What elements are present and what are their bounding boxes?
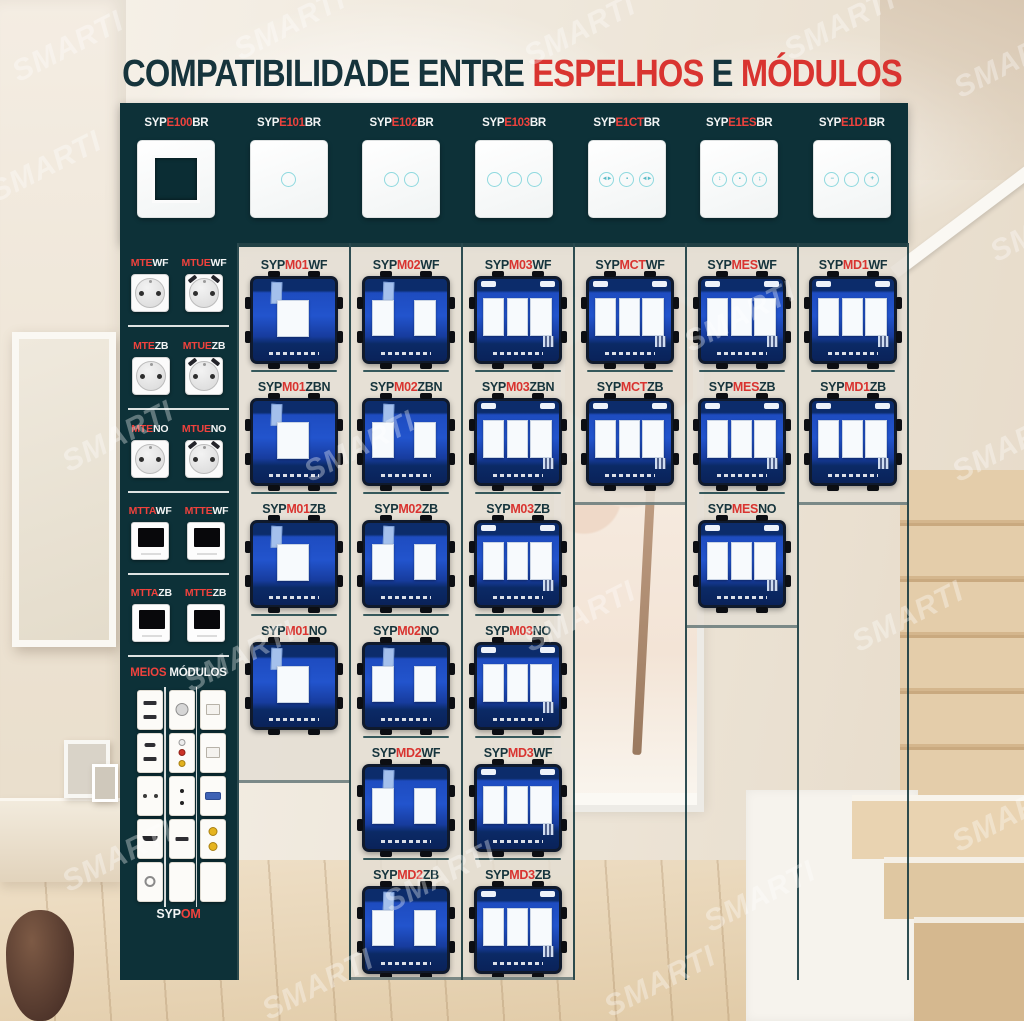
label-part-code: M01 xyxy=(285,624,308,638)
label-part-code: M03 xyxy=(506,380,529,394)
mtezb-image xyxy=(132,357,170,395)
cell-divider xyxy=(587,370,673,372)
mounting-tab xyxy=(337,575,343,587)
mounting-tab xyxy=(449,419,455,431)
title-part: E xyxy=(703,53,740,95)
mounting-tab xyxy=(449,697,455,709)
button-area xyxy=(414,300,435,335)
mounting-tab xyxy=(469,785,475,797)
mounting-tab xyxy=(716,515,728,521)
mounting-tab xyxy=(357,941,363,953)
cell-divider xyxy=(475,858,561,860)
mounting-tab xyxy=(420,485,432,491)
corner-mark xyxy=(540,647,555,653)
touch-circle-icon: + xyxy=(864,172,879,187)
button-area xyxy=(754,542,775,581)
mounting-tab xyxy=(337,697,343,709)
mounting-tab xyxy=(804,419,810,431)
mounting-tab xyxy=(380,729,392,735)
mounting-tab xyxy=(716,393,728,399)
label-part-suffix: ZB xyxy=(647,380,663,394)
mounting-tab xyxy=(380,607,392,613)
label-part-code: MCT xyxy=(620,258,646,272)
mounting-tab xyxy=(420,851,432,857)
module-print-text xyxy=(381,718,430,721)
mttawf-image xyxy=(131,522,169,560)
mounting-tab xyxy=(804,453,810,465)
espelhos-header-band: SYPE100BRSYPE101BRSYPE102BRSYPE103BRSYPE… xyxy=(120,103,908,243)
socket-hole xyxy=(156,457,161,462)
label-part-prefix: SYP xyxy=(373,868,397,882)
label-part-suffix: NO xyxy=(309,624,327,638)
module-image-meswf xyxy=(698,276,786,364)
mounting-tab xyxy=(581,453,587,465)
module-print-text xyxy=(381,962,430,965)
button-area xyxy=(414,422,435,457)
label-part-suffix: BR xyxy=(192,117,208,129)
button-area xyxy=(277,666,309,703)
label-part-suffix: NO xyxy=(758,502,776,516)
mounting-tab xyxy=(357,819,363,831)
qr-code xyxy=(543,702,554,713)
mounting-tab xyxy=(785,419,791,431)
module-print-text xyxy=(269,352,318,355)
mounting-tab xyxy=(380,515,392,521)
mounting-tab xyxy=(268,393,280,399)
mounting-tab xyxy=(357,453,363,465)
device-label-mttewf: MTTEWF xyxy=(185,505,229,518)
device-label-mtueno: MTUENO xyxy=(182,423,226,436)
connector-glyph xyxy=(144,715,157,719)
mounting-tab xyxy=(532,637,544,643)
mounting-tab xyxy=(867,393,879,399)
module-column-5: SYPMESWFSYPMESZBSYPMESNO xyxy=(687,243,797,628)
label-part-suffix: ZB xyxy=(158,587,172,599)
label-part-prefix: SYP xyxy=(593,117,615,129)
mounting-tab xyxy=(716,271,728,277)
touch-circle-icon: ◄► xyxy=(639,172,654,187)
label-part-code: MD3 xyxy=(508,746,534,760)
module-print-text xyxy=(717,352,766,355)
label-part-suffix: WF xyxy=(420,258,439,272)
mounting-tab xyxy=(561,331,567,343)
socket-hole xyxy=(139,457,144,462)
label-part-suffix: ZBN xyxy=(417,380,442,394)
mounting-tab xyxy=(716,607,728,613)
mounting-tab xyxy=(380,637,392,643)
mounting-tab xyxy=(561,575,567,587)
button-area xyxy=(842,298,863,337)
connector-glyph xyxy=(206,704,220,715)
label-part-prefix: SYP xyxy=(156,907,180,921)
mttazb-image xyxy=(132,604,170,642)
label-part-code: M02 xyxy=(397,624,420,638)
thermostat-line xyxy=(141,553,161,555)
label-part-suffix: NO xyxy=(421,624,439,638)
button-area xyxy=(414,666,435,701)
espelho-plate-e101 xyxy=(250,140,328,218)
mounting-tab xyxy=(449,785,455,797)
connector-glyph xyxy=(175,703,188,716)
mounting-tab xyxy=(268,363,280,369)
connector-glyph xyxy=(145,743,156,747)
module-image-md1wf xyxy=(809,276,897,364)
corner-mark xyxy=(481,769,496,775)
device-mtuezb: MTUEZB xyxy=(183,340,226,395)
button-area xyxy=(818,298,839,337)
mounting-tab xyxy=(449,941,455,953)
plate-slot-e1d1: SYPE1D1BR−+ xyxy=(800,103,904,243)
mounting-tab xyxy=(644,485,656,491)
mounting-tab xyxy=(357,663,363,675)
module-print-text xyxy=(381,840,430,843)
meios-module-f-connector-double xyxy=(200,819,226,859)
mounting-tab xyxy=(604,363,616,369)
mounting-tab xyxy=(492,851,504,857)
mounting-tab xyxy=(469,297,475,309)
touch-circle-icon xyxy=(527,172,542,187)
mounting-tab xyxy=(756,271,768,277)
mounting-tab xyxy=(245,663,251,675)
label-part-code: M02 xyxy=(397,258,420,272)
button-area xyxy=(277,422,309,459)
label-part-prefix: SYP xyxy=(485,868,509,882)
plate-label-e1d1: SYPE1D1BR xyxy=(800,117,904,129)
device-mtewf: MTEWF xyxy=(131,257,169,312)
mounting-tab xyxy=(785,297,791,309)
module-print-text xyxy=(381,474,430,477)
qr-code xyxy=(655,458,666,469)
module-image-md2wf xyxy=(362,764,450,852)
mounting-tab xyxy=(380,881,392,887)
device-label-mttawf: MTTAWF xyxy=(129,505,172,518)
device-label-mtuezb: MTUEZB xyxy=(183,340,226,353)
module-column-6: SYPMD1WFSYPMD1ZB xyxy=(799,243,907,505)
module-image-md3wf xyxy=(474,764,562,852)
device-mtueno: MTUENO xyxy=(182,423,226,478)
module-print-text xyxy=(493,840,542,843)
mounting-tab xyxy=(449,297,455,309)
socket-screw xyxy=(149,280,152,283)
label-part-prefix: SYP xyxy=(370,380,394,394)
connector-glyph xyxy=(206,747,220,758)
label-part-code: MTUE xyxy=(183,340,212,352)
label-part-code: MD1 xyxy=(844,380,870,394)
mounting-tab xyxy=(561,697,567,709)
mounting-tab xyxy=(420,637,432,643)
qr-code xyxy=(878,458,889,469)
label-part-suffix: ZB xyxy=(870,380,886,394)
corner-mark xyxy=(705,281,720,287)
mounting-tab xyxy=(716,485,728,491)
qr-code xyxy=(543,946,554,957)
mounting-tab xyxy=(420,515,432,521)
device-row: MTTAWFMTTEWF xyxy=(120,505,237,560)
device-mttewf: MTTEWF xyxy=(185,505,229,560)
corner-mark xyxy=(540,525,555,531)
corner-mark xyxy=(652,403,667,409)
meios-module-blank xyxy=(169,862,195,902)
mounting-tab xyxy=(561,419,567,431)
button-area xyxy=(865,298,886,337)
mounting-tab xyxy=(245,419,251,431)
mounting-tab xyxy=(693,453,699,465)
mounting-tab xyxy=(673,297,679,309)
module-print-text xyxy=(493,718,542,721)
module-print-text xyxy=(381,596,430,599)
panel-divider xyxy=(128,325,229,327)
button-area xyxy=(865,420,886,459)
module-print-text xyxy=(269,596,318,599)
module-image-md3zb xyxy=(474,886,562,974)
label-part-suffix: WF xyxy=(532,258,551,272)
button-area xyxy=(731,542,752,581)
meios-module-blank xyxy=(200,862,226,902)
device-label-mtewf: MTEWF xyxy=(131,257,169,270)
corner-mark xyxy=(764,281,779,287)
cell-divider xyxy=(699,492,785,494)
mounting-tab xyxy=(469,907,475,919)
socket-hole xyxy=(157,374,162,379)
cell-divider xyxy=(251,492,337,494)
label-part-prefix: SYP xyxy=(819,117,841,129)
door-threshold xyxy=(561,793,697,805)
label-part-prefix: SYP xyxy=(709,380,733,394)
mounting-tab xyxy=(308,363,320,369)
mounting-tab xyxy=(804,297,810,309)
meios-module-coax-round xyxy=(137,862,163,902)
label-part-prefix: SYP xyxy=(374,502,398,516)
button-area xyxy=(372,666,393,701)
label-part-code: M01 xyxy=(282,380,305,394)
espelho-plate-e1ct: ◄►▪◄► xyxy=(588,140,666,218)
mounting-tab xyxy=(693,575,699,587)
label-part-code: M03 xyxy=(509,624,532,638)
mounting-tab xyxy=(561,819,567,831)
button-area xyxy=(372,910,393,945)
mounting-tab xyxy=(673,419,679,431)
mounting-tab xyxy=(357,541,363,553)
label-part-code: MD3 xyxy=(509,868,535,882)
module-image-meszb xyxy=(698,398,786,486)
module-print-text xyxy=(717,474,766,477)
mounting-tab xyxy=(532,607,544,613)
mounting-tab xyxy=(581,297,587,309)
espelho-plate-e102 xyxy=(362,140,440,218)
mounting-tab xyxy=(644,393,656,399)
label-part-suffix: ZBN xyxy=(305,380,330,394)
cell-divider xyxy=(811,370,895,372)
mounting-tab xyxy=(245,541,251,553)
label-part-code: MES xyxy=(732,258,758,272)
mounting-tab xyxy=(827,271,839,277)
page-title: COMPATIBILIDADE ENTRE ESPELHOS E MÓDULOS xyxy=(72,53,953,96)
button-area xyxy=(731,420,752,459)
plate-slot-e103: SYPE103BR xyxy=(462,103,566,243)
connector-glyph xyxy=(175,837,188,841)
module-print-text xyxy=(493,474,542,477)
module-print-text xyxy=(493,352,542,355)
meios-module-rca-triple xyxy=(169,733,195,773)
label-part-prefix: SYP xyxy=(144,117,166,129)
mounting-tab xyxy=(245,697,251,709)
module-column-3: SYPM03WFSYPM03ZBNSYPM03ZBSYPM03NOSYPMD3W… xyxy=(463,243,573,980)
module-image-m02no xyxy=(362,642,450,730)
label-part-prefix: SYP xyxy=(485,624,509,638)
plate-label-e100: SYPE100BR xyxy=(124,117,228,129)
meios-module-usb-single xyxy=(169,819,195,859)
mounting-tab xyxy=(449,453,455,465)
mounting-tab xyxy=(380,393,392,399)
picture-frame-small xyxy=(92,764,118,802)
touch-circle-icon xyxy=(384,172,399,187)
socket-hole xyxy=(193,291,198,296)
connector-glyph xyxy=(209,842,218,851)
mounting-tab xyxy=(604,393,616,399)
mounting-tab xyxy=(420,759,432,765)
label-part-suffix: ZB xyxy=(310,502,326,516)
cell-divider xyxy=(475,614,561,616)
plate-slot-e1ct: SYPE1CTBR◄►▪◄► xyxy=(575,103,679,243)
connector-glyph xyxy=(178,749,185,756)
connector-glyph xyxy=(143,836,158,841)
touch-circle-icon: ↨ xyxy=(752,172,767,187)
meios-title-part: MEIOS xyxy=(130,667,169,679)
button-area xyxy=(414,910,435,945)
stair-step xyxy=(884,857,1024,919)
corner-mark xyxy=(816,403,831,409)
label-part-code: MTUE xyxy=(182,257,211,269)
label-part-code: M01 xyxy=(286,502,309,516)
corner-mark xyxy=(481,281,496,287)
mounting-tab xyxy=(492,759,504,765)
connector-glyph xyxy=(180,789,184,793)
mounting-tab xyxy=(827,393,839,399)
sypom-label: SYPOM xyxy=(120,907,237,921)
meios-module-rj45 xyxy=(200,690,226,730)
label-part-prefix: SYP xyxy=(485,258,509,272)
corner-mark xyxy=(764,525,779,531)
mounting-tab xyxy=(827,485,839,491)
mounting-tab xyxy=(561,453,567,465)
label-part-code: MTE xyxy=(131,423,153,435)
mounting-tab xyxy=(785,453,791,465)
thermostat-screen xyxy=(138,528,164,547)
mounting-tab xyxy=(532,851,544,857)
label-part-prefix: SYP xyxy=(707,258,731,272)
title-part-espelhos: ESPELHOS xyxy=(532,53,703,95)
button-area xyxy=(530,786,551,825)
mounting-tab xyxy=(561,297,567,309)
corner-mark xyxy=(540,769,555,775)
mounting-tab xyxy=(492,973,504,979)
touch-circle-icon: − xyxy=(824,172,839,187)
mounting-tab xyxy=(268,515,280,521)
socket-hole xyxy=(210,457,215,462)
touch-circle-icon: ◄► xyxy=(599,172,614,187)
button-area xyxy=(372,788,393,823)
device-label-mttazb: MTTAZB xyxy=(131,587,172,600)
mounting-tab xyxy=(693,541,699,553)
socket-hole xyxy=(193,457,198,462)
label-part-code: M01 xyxy=(285,258,308,272)
mounting-tab xyxy=(756,607,768,613)
module-image-m03wf xyxy=(474,276,562,364)
device-label-mttezb: MTTEZB xyxy=(185,587,226,600)
espelho-plate-e1es: ↕▪↨ xyxy=(700,140,778,218)
mounting-tab xyxy=(337,419,343,431)
module-print-text xyxy=(269,718,318,721)
button-area xyxy=(530,542,551,581)
mtewf-image xyxy=(131,274,169,312)
mounting-tab xyxy=(245,453,251,465)
mounting-tab xyxy=(337,541,343,553)
button-area xyxy=(595,298,616,337)
mounting-tab xyxy=(804,331,810,343)
device-label-mteno: MTENO xyxy=(131,423,168,436)
mounting-tab xyxy=(268,637,280,643)
label-part-code: M02 xyxy=(398,502,421,516)
corner-mark xyxy=(764,403,779,409)
mounting-tab xyxy=(693,297,699,309)
mtuezb-image xyxy=(185,357,223,395)
label-part-code: E1CT xyxy=(616,117,644,129)
label-part-suffix: ZBN xyxy=(529,380,554,394)
connector-glyph xyxy=(178,760,185,767)
mounting-tab xyxy=(469,819,475,831)
cell-divider xyxy=(475,736,561,738)
mounting-tab xyxy=(644,271,656,277)
mounting-tab xyxy=(492,637,504,643)
mounting-tab xyxy=(561,541,567,553)
socket-hole xyxy=(193,374,198,379)
corner-mark xyxy=(705,525,720,531)
module-column-1: SYPM01WFSYPM01ZBNSYPM01ZBSYPM01NO xyxy=(239,243,349,783)
mounting-tab xyxy=(867,363,879,369)
touch-circle-icon xyxy=(844,172,859,187)
mounting-tab xyxy=(785,575,791,587)
mounting-tab xyxy=(420,393,432,399)
mounting-tab xyxy=(380,485,392,491)
label-part-prefix: SYP xyxy=(370,117,392,129)
connector-glyph xyxy=(154,794,158,798)
label-part-prefix: SYP xyxy=(372,746,396,760)
mounting-tab xyxy=(492,881,504,887)
connector-glyph xyxy=(180,801,184,805)
module-image-mctwf xyxy=(586,276,674,364)
mounting-tab xyxy=(337,297,343,309)
label-part-suffix: ZB xyxy=(155,340,169,352)
meios-grid-line xyxy=(196,687,198,907)
socket-screw xyxy=(149,446,152,449)
qr-code xyxy=(878,336,889,347)
mounting-tab xyxy=(756,363,768,369)
plate-label-e1es: SYPE1ESBR xyxy=(687,117,791,129)
label-part-code: M03 xyxy=(510,502,533,516)
mounting-tab xyxy=(896,419,902,431)
label-part-prefix: SYP xyxy=(706,117,728,129)
label-part-code: MTUE xyxy=(182,423,211,435)
mounting-tab xyxy=(469,941,475,953)
label-part-prefix: SYP xyxy=(819,258,843,272)
plate-label-e102: SYPE102BR xyxy=(349,117,453,129)
button-area xyxy=(754,298,775,337)
button-area xyxy=(483,664,504,703)
button-area xyxy=(507,664,528,703)
mounting-tab xyxy=(420,881,432,887)
button-area xyxy=(483,908,504,947)
touch-circle-icon: ▪ xyxy=(619,172,634,187)
